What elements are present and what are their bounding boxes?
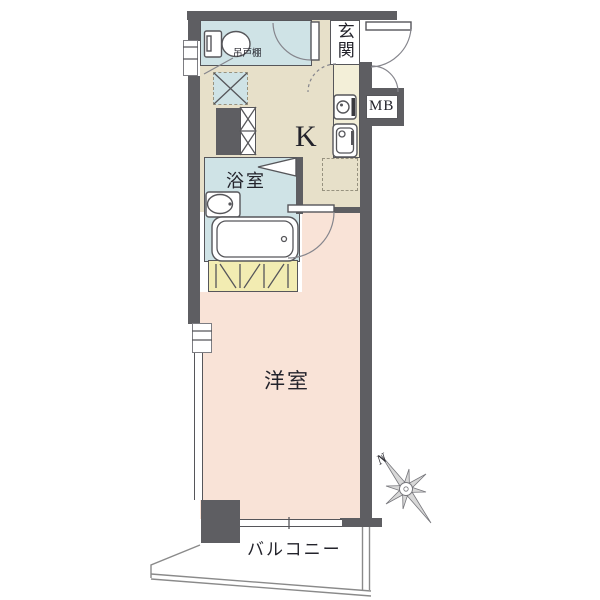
western-room-label: 洋室 <box>264 370 310 393</box>
hanging-cupboard-label: 吊戸棚 <box>233 49 262 59</box>
wall-top <box>187 11 397 20</box>
wall-left-upper <box>188 11 200 41</box>
wall-corner-block <box>201 500 240 543</box>
side-window-frame <box>192 323 212 353</box>
balcony-window <box>240 519 342 527</box>
entrance-label: 玄関 <box>334 22 353 60</box>
entrance-door-leaf <box>366 22 411 30</box>
balcony-outline <box>151 527 371 596</box>
floor-plan: N 玄関 K 浴室 洋室 バルコニー MB 吊戸棚 <box>0 0 600 600</box>
toilet-window <box>183 40 198 76</box>
compass-north-label: N <box>373 451 390 469</box>
balcony-label: バルコニー <box>247 541 342 560</box>
wall-bottom-right <box>340 518 382 527</box>
washing-machine-space <box>213 72 248 105</box>
north-compass-icon: N <box>373 451 431 523</box>
side-window <box>194 353 203 500</box>
meter-box-label: MB <box>369 98 394 115</box>
wall-bathroom-right <box>296 157 303 214</box>
closet <box>208 260 298 292</box>
kitchen-label: K <box>295 120 317 153</box>
bathroom-label: 浴室 <box>226 172 266 192</box>
western-room-lower <box>200 292 302 519</box>
kitchen-counter <box>333 64 360 158</box>
pipe-space <box>240 107 256 155</box>
wall-right <box>360 62 372 518</box>
wall-column <box>216 108 240 155</box>
refrigerator-space <box>322 158 358 191</box>
western-room-upper <box>302 212 360 519</box>
entrance-door-arc <box>371 29 411 67</box>
wall-kitchen-boundary <box>334 207 360 213</box>
wall-left-main <box>188 76 200 324</box>
